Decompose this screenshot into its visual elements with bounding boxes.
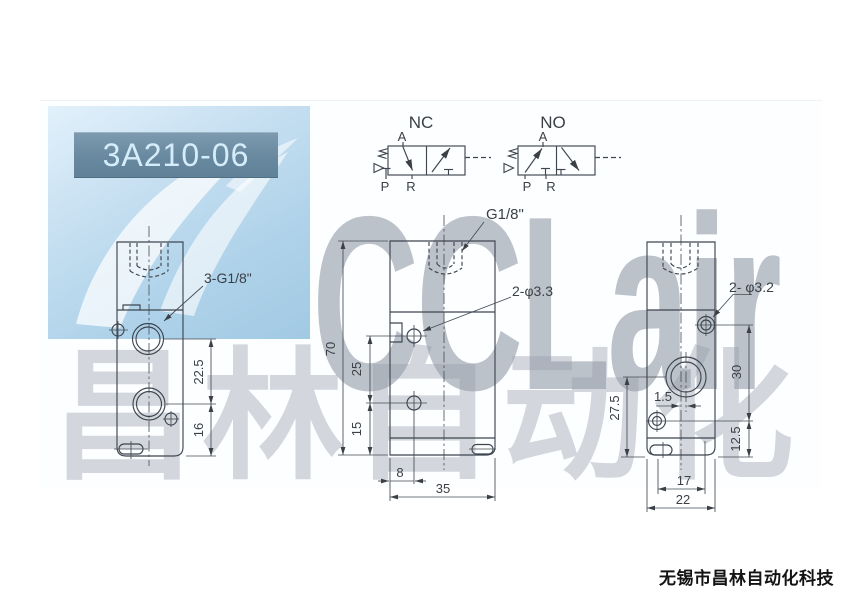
- nc-label: NC: [409, 113, 434, 132]
- side-dim-25: 25: [349, 362, 364, 376]
- nc-port-r-label: R: [406, 179, 415, 194]
- front-view: 3-G1/8" 22.5 16: [109, 226, 252, 466]
- nc-port-a-label: A: [398, 129, 407, 144]
- side-dim-70: 70: [323, 342, 338, 356]
- front-dim-16: 16: [191, 423, 206, 437]
- side-dim-8: 8: [396, 465, 403, 480]
- datasheet-page: 3A210-06 CCLair 昌林自动化 NC A P R: [0, 0, 850, 600]
- end-dim-22: 22: [676, 492, 690, 507]
- front-dim-22-5: 22.5: [191, 359, 206, 384]
- side-dim-35: 35: [436, 481, 450, 496]
- nc-port-p-label: P: [381, 179, 390, 194]
- end-hole-label: 2- φ3.2: [729, 279, 774, 295]
- end-dim-27-5: 27.5: [607, 395, 622, 420]
- side-thread-label: G1/8": [486, 206, 524, 223]
- no-valve-symbol: NO A P R: [504, 113, 621, 194]
- side-dim-15: 15: [349, 422, 364, 436]
- technical-drawing: NC A P R NO A: [0, 0, 850, 600]
- side-hole-label: 2-φ3.3: [512, 283, 553, 299]
- no-port-r-label: R: [546, 179, 555, 194]
- end-view: 2- φ3.2 30 1.5 27.5 12.5 17 22: [607, 215, 774, 512]
- end-dim-30: 30: [729, 365, 744, 379]
- side-view: G1/8" 2-φ3.3 70 25 15 8 35: [323, 206, 553, 501]
- pilot-triangle-icon: [504, 164, 514, 173]
- company-name: 无锡市昌林自动化科技: [659, 564, 834, 589]
- no-port-p-label: P: [523, 179, 532, 194]
- spring-icon: [509, 149, 519, 159]
- nc-valve-symbol: NC A P R: [374, 113, 491, 194]
- end-dim-17: 17: [677, 473, 691, 488]
- no-port-a-label: A: [539, 129, 548, 144]
- end-dim-1-5: 1.5: [654, 389, 672, 404]
- end-dim-12-5: 12.5: [728, 426, 743, 451]
- front-thread-label: 3-G1/8": [204, 270, 252, 286]
- spring-icon: [379, 149, 389, 159]
